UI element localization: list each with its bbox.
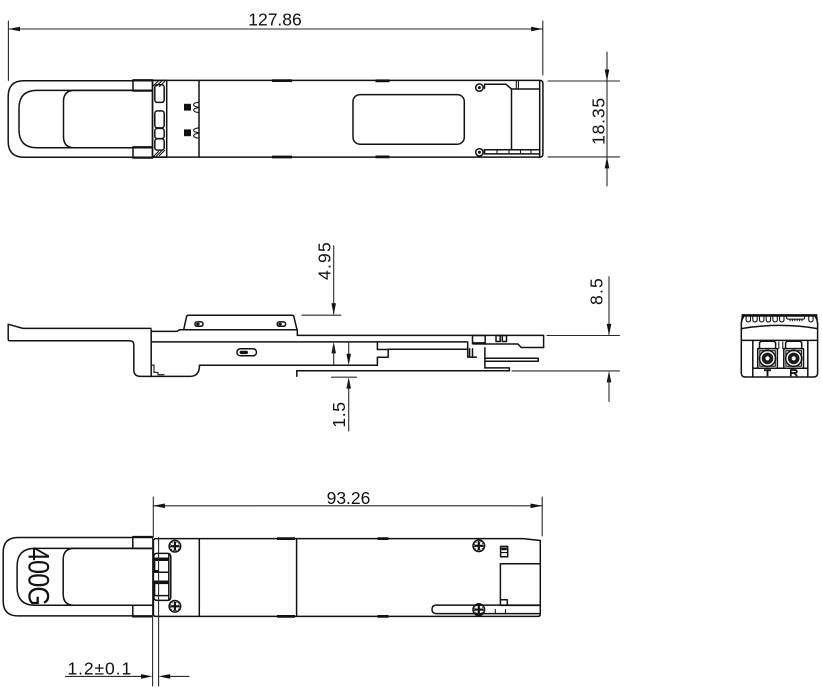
- svg-text:1.2±0.1: 1.2±0.1: [68, 659, 133, 679]
- svg-text:1.5: 1.5: [329, 401, 349, 427]
- svg-text:93.26: 93.26: [327, 488, 371, 508]
- svg-text:8.5: 8.5: [587, 277, 607, 305]
- svg-text:4.95: 4.95: [315, 241, 335, 280]
- svg-text:18.35: 18.35: [589, 97, 609, 145]
- svg-text:127.86: 127.86: [248, 10, 302, 30]
- svg-text:400G: 400G: [22, 547, 56, 605]
